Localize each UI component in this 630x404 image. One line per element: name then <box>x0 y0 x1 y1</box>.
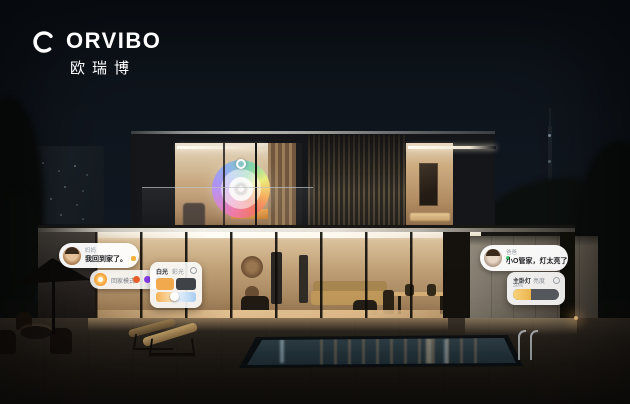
brightness-swatch-off[interactable] <box>176 278 196 290</box>
bed-silhouette <box>410 213 450 221</box>
roof-edge-light <box>131 131 495 134</box>
slider-knob[interactable] <box>170 292 179 301</box>
brightness-swatch-on[interactable] <box>156 278 174 290</box>
brightness-slider-fill <box>513 289 531 300</box>
dark-wall-section <box>443 232 470 320</box>
ceiling-light-strip <box>177 146 265 149</box>
light-control-panel-bedroom[interactable]: 主卧灯 亮度 30% <box>507 272 565 305</box>
tab-color-light[interactable]: 彩光 <box>172 267 184 276</box>
light-control-panel-living[interactable]: 白光 彩光 <box>150 262 202 308</box>
cool-temp-slider[interactable] <box>176 292 196 302</box>
balcony-glass-railing <box>142 187 313 225</box>
step-light <box>574 316 578 320</box>
water-reflection <box>444 339 448 364</box>
brightness-slider[interactable] <box>513 289 559 300</box>
brand-name-chinese: 欧瑞博 <box>70 57 136 78</box>
chat-bubble-dad[interactable]: 爸爸 小O管家，灯太亮了 <box>480 245 568 271</box>
light-color-dot-orange[interactable] <box>133 276 140 283</box>
orvibo-smart-home-scene: ORVIBO 欧瑞博 妈妈 我回到家了。 回家模式 白光 彩光 爸爸 小O管家，… <box>0 0 630 404</box>
umbrella-pole <box>52 280 55 334</box>
water-reflection <box>280 339 284 363</box>
pool-water <box>230 334 530 370</box>
chat-bubble-mom[interactable]: 妈妈 我回到家了。 <box>59 243 139 268</box>
sun-icon <box>94 273 107 286</box>
wall-art <box>419 163 438 206</box>
hue-selector-handle[interactable] <box>236 159 246 169</box>
scene-label: 回家模式 <box>111 276 135 285</box>
tab-white-light[interactable]: 白光 <box>156 267 168 276</box>
pool-ladder <box>518 330 526 360</box>
lounge-chairs <box>120 316 212 368</box>
avatar <box>484 249 502 267</box>
chat-message: 我回到家了。 <box>85 254 127 264</box>
swimming-pool <box>230 334 530 370</box>
pool-ladder <box>530 330 538 360</box>
brand-name: ORVIBO <box>66 28 161 54</box>
orvibo-logo: ORVIBO 欧瑞博 <box>30 24 250 80</box>
lounge-frame <box>149 339 196 357</box>
louvered-facade <box>308 135 406 232</box>
water-reflection <box>426 338 432 364</box>
house-upper-floor <box>131 131 495 232</box>
orvibo-ring-icon <box>30 28 58 56</box>
bedroom-window <box>406 143 453 228</box>
power-icon[interactable] <box>553 277 560 284</box>
power-icon[interactable] <box>190 267 197 274</box>
wicker-chair <box>0 330 16 354</box>
chat-message-text: 小O管家，灯太亮了 <box>506 256 567 266</box>
wave-emoji-icon <box>131 256 136 261</box>
avatar <box>63 247 81 265</box>
brightness-label: 亮度 <box>533 276 545 285</box>
ceiling-light-strip <box>408 146 496 149</box>
